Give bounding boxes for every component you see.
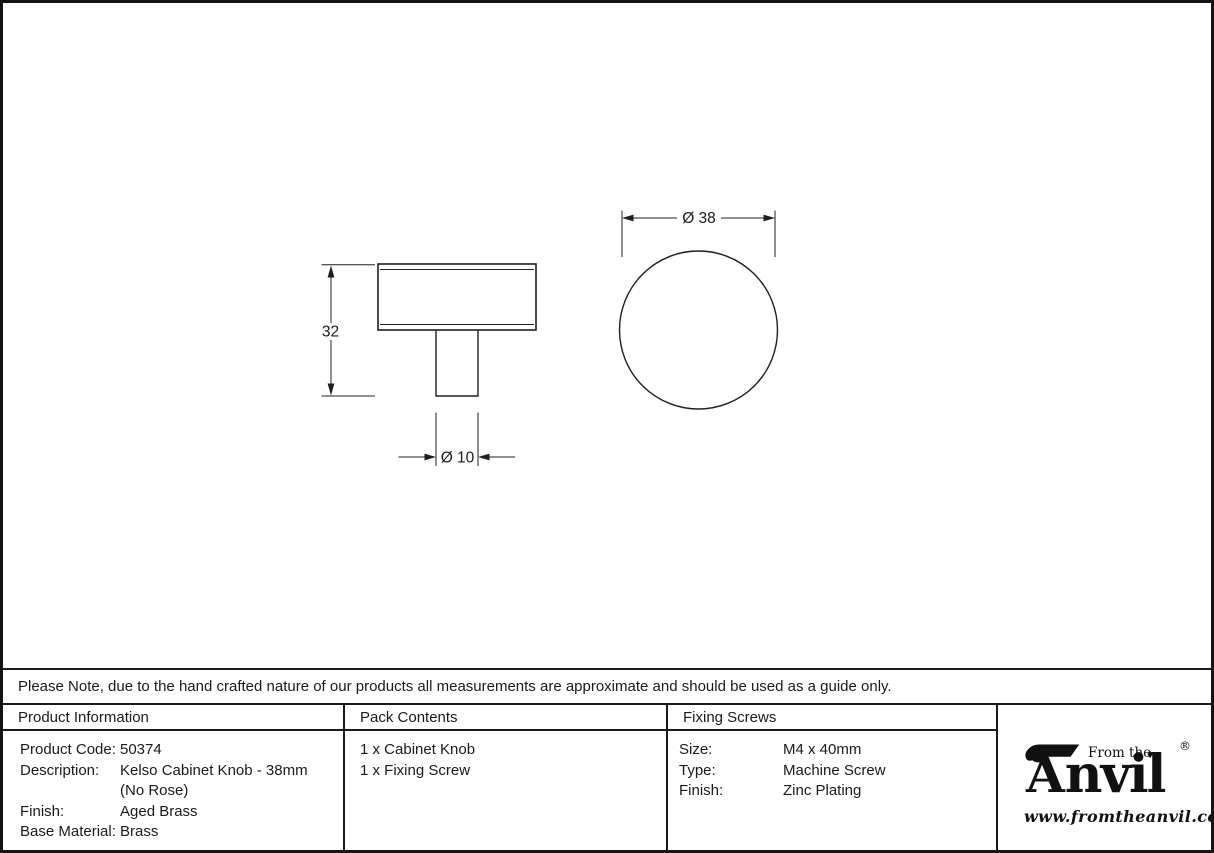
- spec-label: [3, 781, 120, 802]
- pack-item: 1 x Cabinet Knob: [345, 740, 666, 761]
- spec-label: Finish:: [668, 781, 783, 802]
- spec-label: Finish:: [3, 802, 120, 823]
- dim-stem-diameter-label: Ø 10: [441, 450, 475, 467]
- product-information-body: Product Code: 50374 Description: Kelso C…: [3, 731, 345, 850]
- fixing-screws-header: Fixing Screws: [668, 705, 998, 731]
- from-the-label: From the: [1088, 745, 1151, 761]
- dim-knob-diameter-label: Ø 38: [682, 210, 716, 227]
- spec-value: (No Rose): [120, 781, 343, 802]
- dim-stem-diameter: Ø 10: [399, 413, 516, 467]
- spec-row: Finish: Aged Brass: [3, 802, 343, 823]
- pack-contents-body: 1 x Cabinet Knob 1 x Fixing Screw: [345, 731, 668, 850]
- spec-row: Finish: Zinc Plating: [668, 781, 996, 802]
- anvil-logo: Anvil From the ♦ ® www.fromtheanvil.co.u…: [998, 705, 1211, 850]
- registered-mark-icon: ®: [1179, 739, 1191, 753]
- knob-side-view: [378, 264, 536, 396]
- spec-table: Product Information Pack Contents Fixing…: [3, 705, 1211, 850]
- dim-knob-diameter: Ø 38: [622, 210, 775, 257]
- spec-row: Description: Kelso Cabinet Knob - 38mm: [3, 761, 343, 782]
- spec-row: Base Material: Brass: [3, 822, 343, 843]
- spec-row: Size: M4 x 40mm: [668, 740, 996, 761]
- spec-value: Zinc Plating: [783, 781, 996, 802]
- spec-row: Product Code: 50374: [3, 740, 343, 761]
- spec-value: Machine Screw: [783, 761, 996, 782]
- measurement-note-text: Please Note, due to the hand crafted nat…: [18, 678, 892, 695]
- spec-sheet: 32 Ø 10 Ø 38 Please Note, due: [0, 0, 1214, 853]
- spec-row: Type: Machine Screw: [668, 761, 996, 782]
- spec-label: Size:: [668, 740, 783, 761]
- spec-label: Type:: [668, 761, 783, 782]
- technical-drawing: 32 Ø 10 Ø 38: [3, 3, 1211, 665]
- logo-url: www.fromtheanvil.co.uk: [1024, 807, 1214, 826]
- anvil-icon: [1023, 742, 1081, 768]
- spec-label: Description:: [3, 761, 120, 782]
- spec-value: 50374: [120, 740, 343, 761]
- spec-label: Product Code:: [3, 740, 120, 761]
- product-information-header: Product Information: [3, 705, 345, 731]
- measurement-note: Please Note, due to the hand crafted nat…: [3, 668, 1211, 705]
- pack-contents-header: Pack Contents: [345, 705, 668, 731]
- spec-value: Brass: [120, 822, 343, 843]
- spec-label: Base Material:: [3, 822, 120, 843]
- pack-item: 1 x Fixing Screw: [345, 761, 666, 782]
- diamond-icon: ♦: [1147, 747, 1153, 761]
- spec-value: Aged Brass: [120, 802, 343, 823]
- fixing-screws-body: Size: M4 x 40mm Type: Machine Screw Fini…: [668, 731, 998, 850]
- spec-row: (No Rose): [3, 781, 343, 802]
- brand-row: Anvil From the ♦ ®: [1026, 749, 1196, 809]
- spec-value: M4 x 40mm: [783, 740, 996, 761]
- spec-value: Kelso Cabinet Knob - 38mm: [120, 761, 343, 782]
- dim-height-label: 32: [322, 324, 339, 341]
- dim-height: 32: [322, 265, 376, 396]
- knob-front-view: [620, 251, 778, 409]
